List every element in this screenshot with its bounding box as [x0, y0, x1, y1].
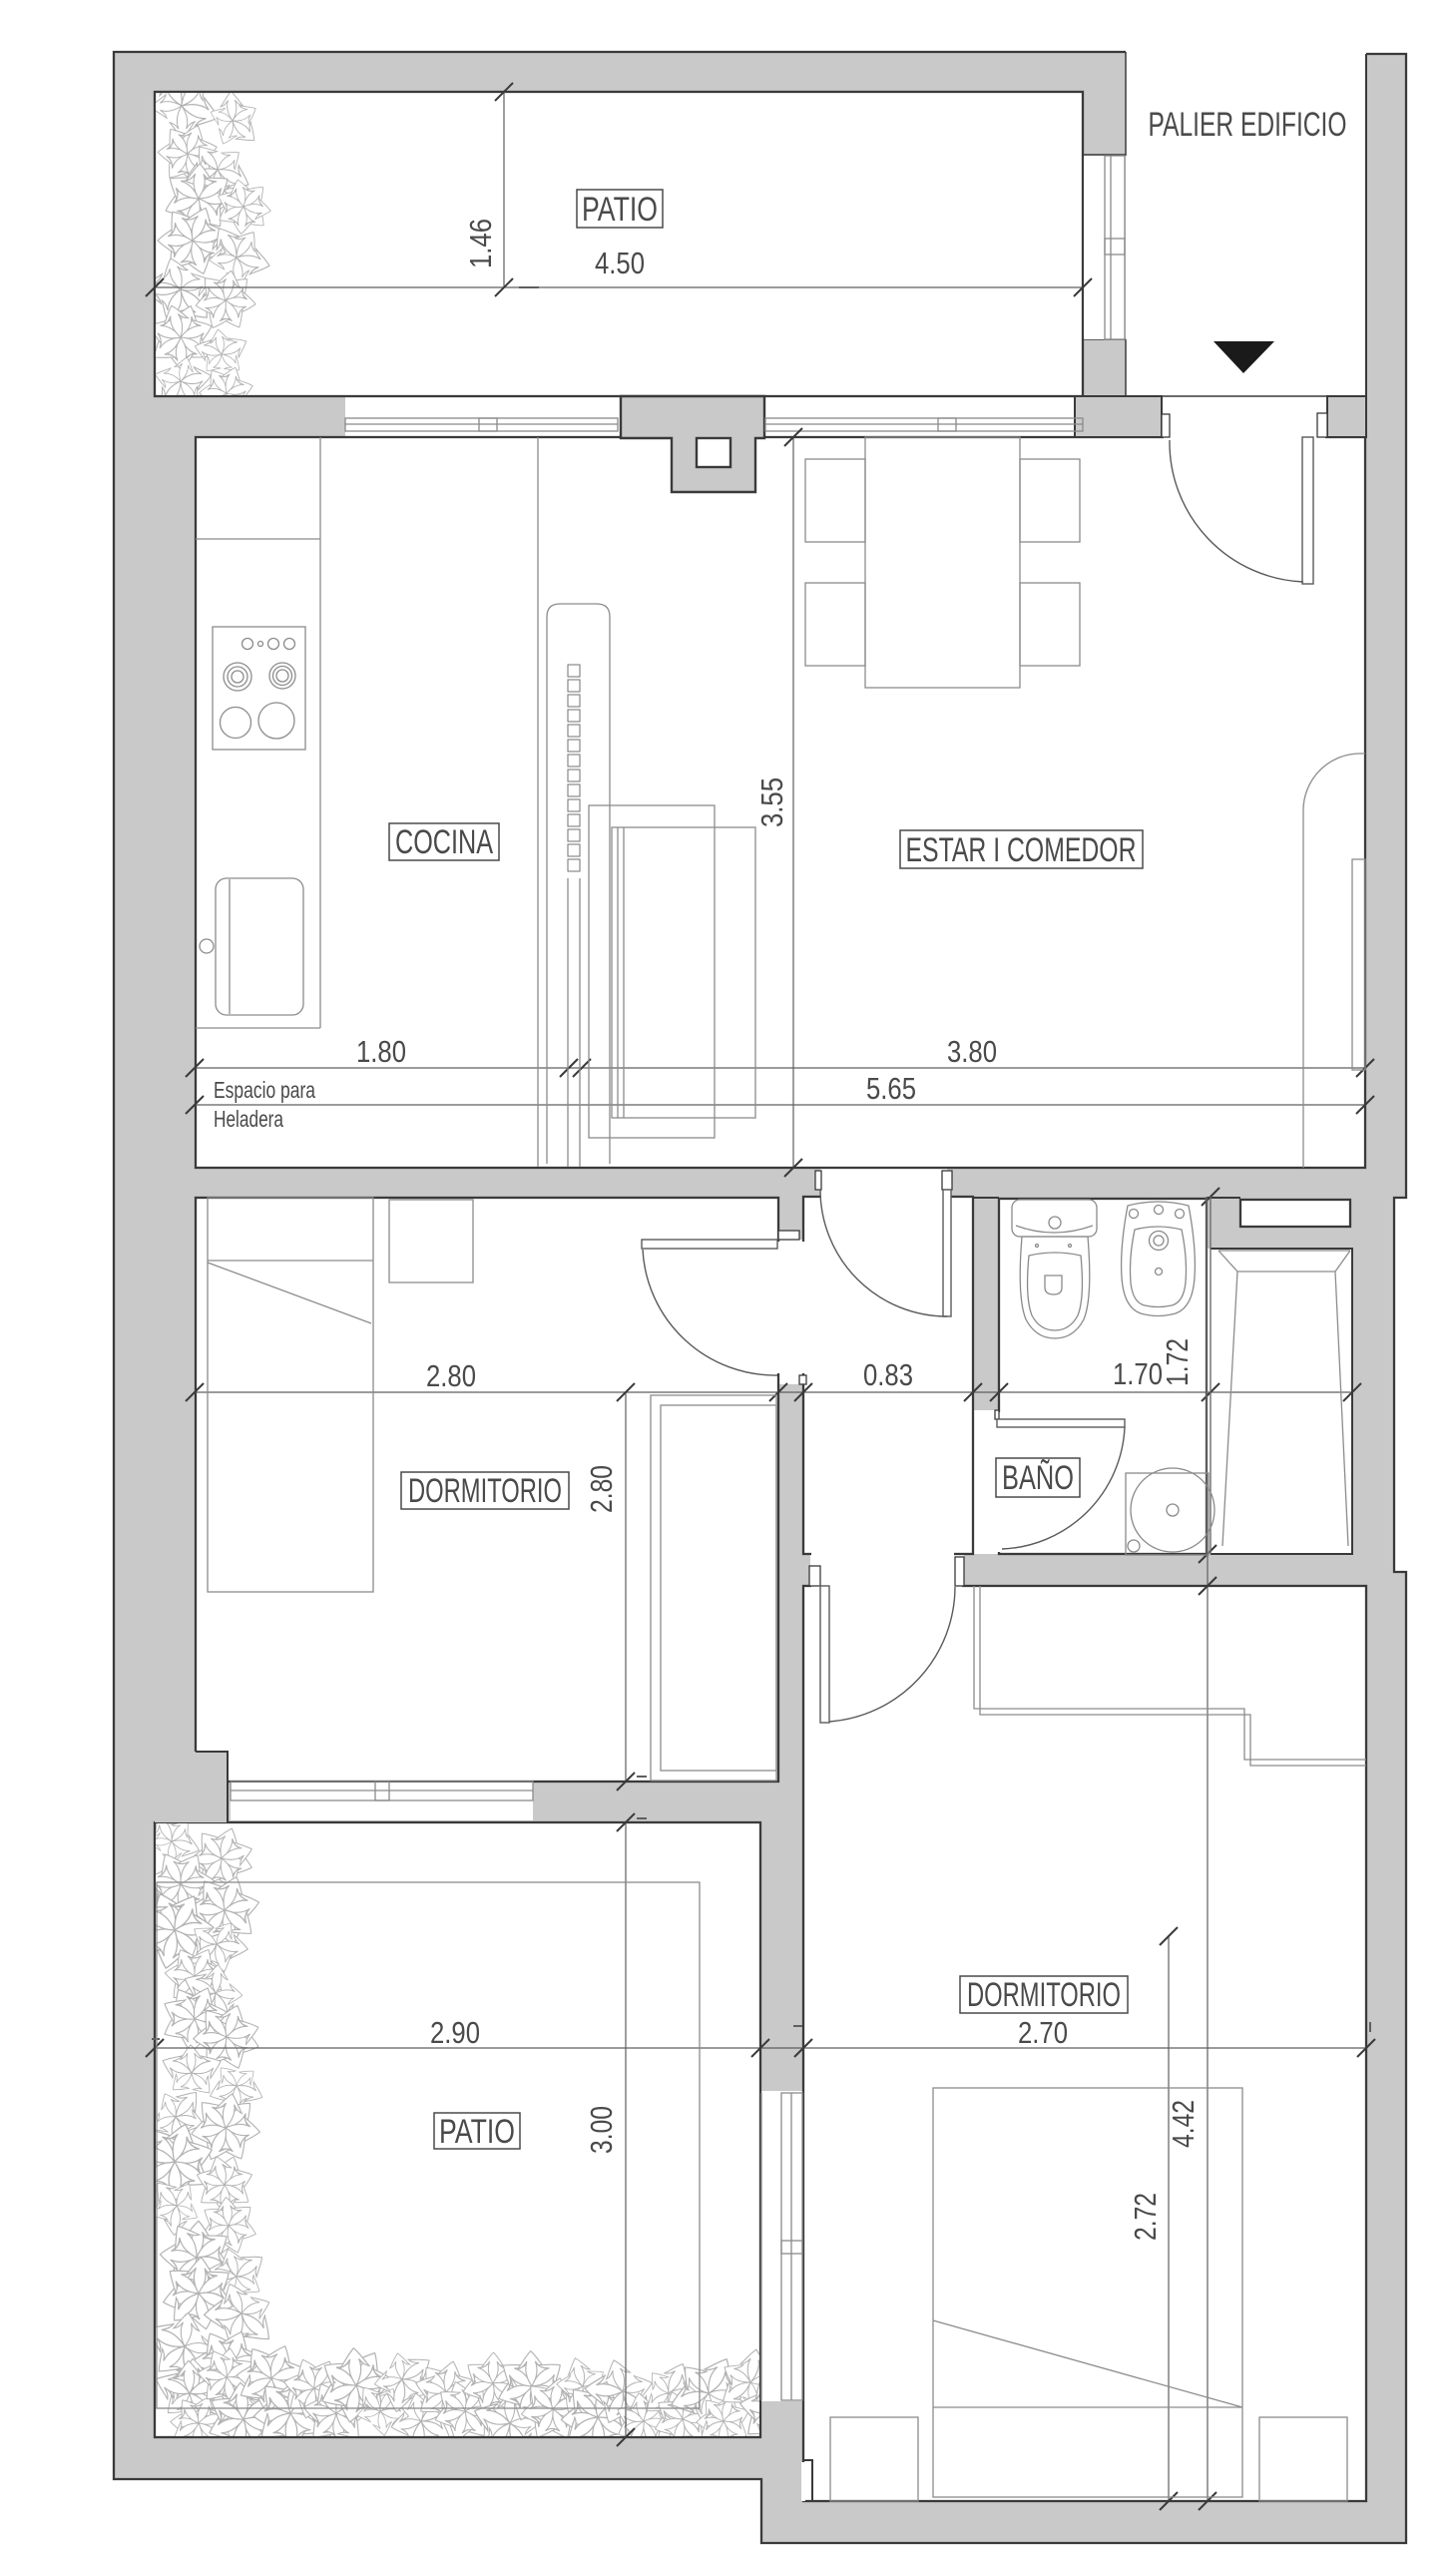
- svg-text:1.46: 1.46: [463, 219, 498, 268]
- svg-text:1.70: 1.70: [1113, 1356, 1163, 1391]
- svg-text:2.70: 2.70: [1018, 2015, 1068, 2050]
- svg-text:PALIER EDIFICIO: PALIER EDIFICIO: [1149, 106, 1347, 144]
- svg-text:1.80: 1.80: [356, 1034, 406, 1069]
- svg-text:2.72: 2.72: [1128, 2193, 1163, 2241]
- svg-text:Heladera: Heladera: [214, 1106, 283, 1132]
- svg-text:PATIO: PATIO: [582, 191, 658, 229]
- svg-text:BAÑO: BAÑO: [1002, 1459, 1074, 1497]
- svg-text:4.42: 4.42: [1166, 2100, 1201, 2148]
- svg-text:2.80: 2.80: [584, 1465, 619, 1513]
- svg-text:5.65: 5.65: [866, 1071, 916, 1106]
- svg-text:0.83: 0.83: [863, 1357, 913, 1392]
- svg-text:ESTAR I COMEDOR: ESTAR I COMEDOR: [906, 831, 1137, 869]
- svg-text:DORMITORIO: DORMITORIO: [408, 1472, 562, 1510]
- svg-text:COCINA: COCINA: [395, 823, 493, 861]
- svg-text:Espacio para: Espacio para: [214, 1077, 315, 1103]
- svg-text:2.80: 2.80: [426, 1358, 476, 1393]
- svg-text:PATIO: PATIO: [439, 2113, 515, 2151]
- svg-text:4.50: 4.50: [595, 246, 645, 280]
- svg-text:2.90: 2.90: [430, 2015, 480, 2050]
- svg-text:3.00: 3.00: [584, 2106, 619, 2154]
- svg-text:1.72: 1.72: [1160, 1338, 1195, 1386]
- svg-text:3.55: 3.55: [754, 777, 789, 827]
- svg-text:DORMITORIO: DORMITORIO: [967, 1976, 1121, 2014]
- svg-text:3.80: 3.80: [947, 1034, 997, 1069]
